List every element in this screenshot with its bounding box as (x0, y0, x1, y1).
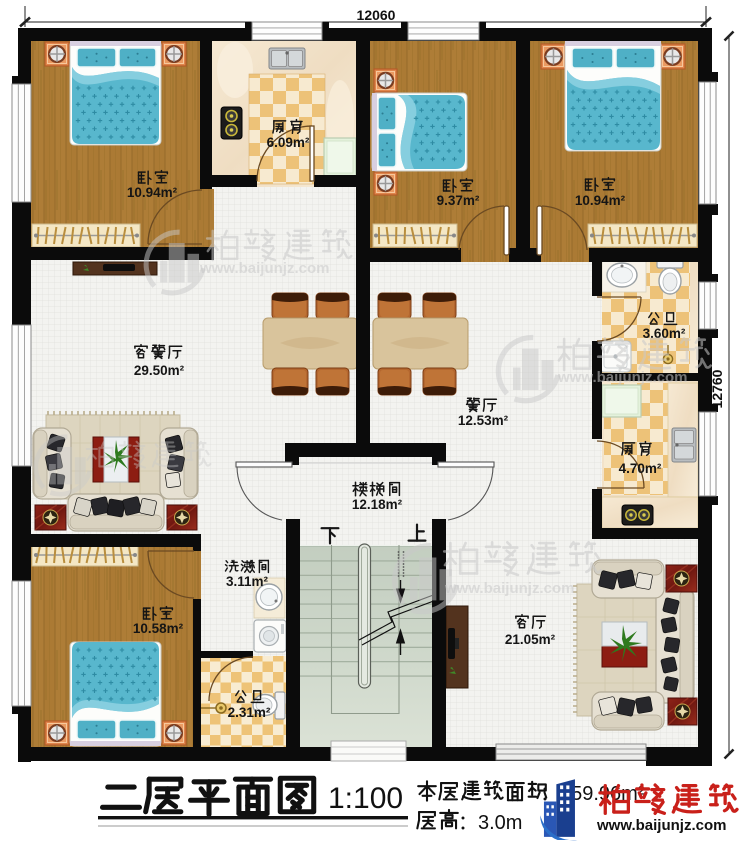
svg-text:www.baijunjz.com: www.baijunjz.com (444, 580, 574, 597)
svg-text:1:100: 1:100 (328, 782, 403, 815)
svg-text:12.18m²: 12.18m² (352, 497, 403, 512)
svg-text:2.31m²: 2.31m² (228, 705, 271, 720)
svg-text:12.53m²: 12.53m² (458, 413, 509, 428)
svg-text:9.37m²: 9.37m² (437, 193, 480, 208)
svg-text:www.baijunjz.com: www.baijunjz.com (199, 260, 329, 277)
svg-text:29.50m²: 29.50m² (134, 363, 185, 378)
svg-text:3.11m²: 3.11m² (226, 574, 269, 589)
svg-text:12060: 12060 (357, 7, 396, 23)
svg-text:10.94m²: 10.94m² (575, 193, 626, 208)
svg-text:21.05m²: 21.05m² (505, 632, 556, 647)
svg-text:6.09m²: 6.09m² (267, 135, 310, 150)
svg-text:www.baijunjz.com: www.baijunjz.com (557, 369, 687, 386)
svg-text:www.baijunjz.com: www.baijunjz.com (596, 817, 726, 834)
svg-text:10.94m²: 10.94m² (127, 185, 178, 200)
svg-text:：3.0m: ：3.0m (458, 812, 522, 834)
svg-text:10.58m²: 10.58m² (133, 621, 184, 636)
svg-text:4.70m²: 4.70m² (619, 461, 662, 476)
